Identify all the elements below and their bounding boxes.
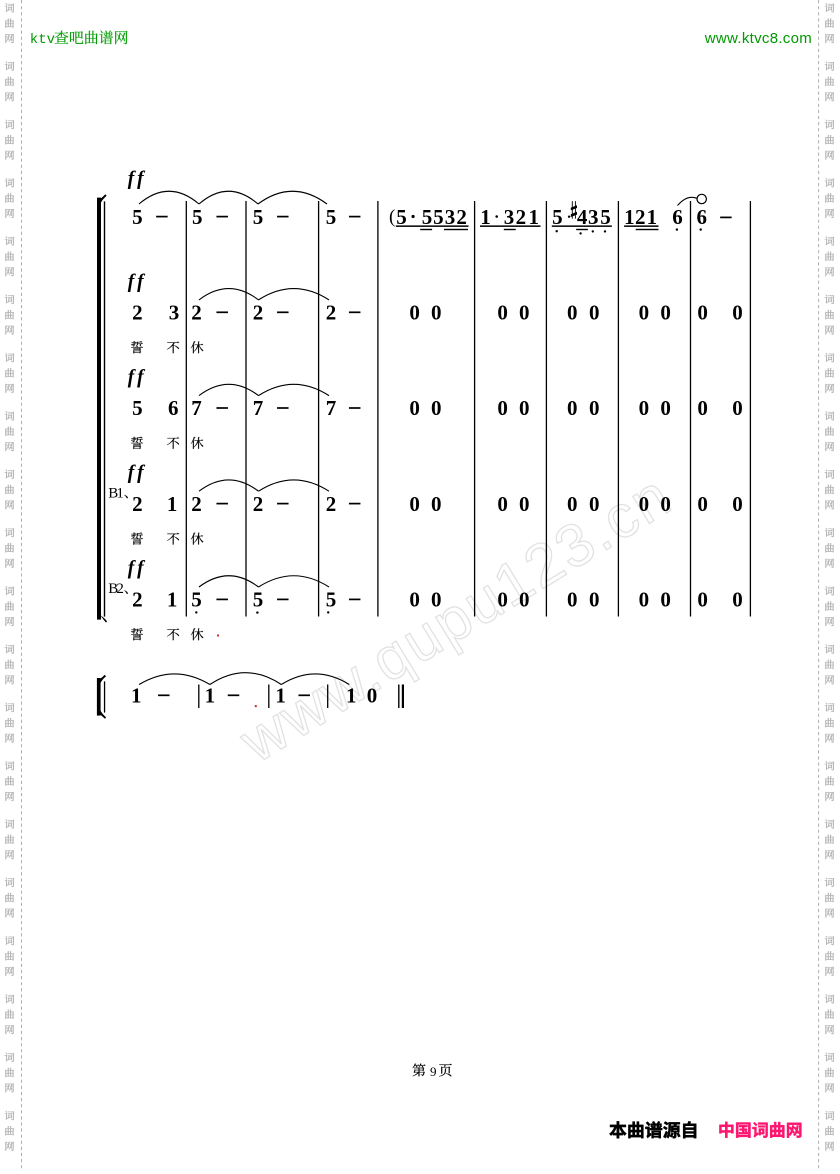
svg-text:7: 7 bbox=[326, 396, 337, 420]
svg-text:6: 6 bbox=[168, 396, 179, 420]
svg-text:ff: ff bbox=[128, 558, 147, 579]
svg-text:0: 0 bbox=[519, 492, 530, 516]
svg-text:1: 1 bbox=[529, 205, 540, 229]
svg-text:0: 0 bbox=[431, 492, 442, 516]
svg-text:5: 5 bbox=[326, 588, 337, 612]
svg-text:0: 0 bbox=[639, 588, 650, 612]
svg-text:0: 0 bbox=[732, 492, 743, 516]
svg-text:5: 5 bbox=[433, 205, 444, 229]
svg-text:5: 5 bbox=[326, 205, 337, 229]
svg-text:0: 0 bbox=[697, 301, 708, 325]
svg-text:3: 3 bbox=[504, 205, 515, 229]
svg-text:0: 0 bbox=[409, 588, 420, 612]
svg-text:0: 0 bbox=[431, 396, 442, 420]
svg-text:5: 5 bbox=[253, 588, 264, 612]
svg-text:1: 1 bbox=[205, 683, 216, 707]
svg-text:5: 5 bbox=[253, 205, 264, 229]
svg-text:0: 0 bbox=[497, 396, 508, 420]
svg-text:0: 0 bbox=[589, 396, 600, 420]
svg-text:2: 2 bbox=[326, 492, 337, 516]
svg-text:2: 2 bbox=[132, 492, 143, 516]
svg-text:0: 0 bbox=[589, 492, 600, 516]
svg-text:1: 1 bbox=[480, 205, 491, 229]
svg-text:5: 5 bbox=[600, 205, 611, 229]
svg-text:(: ( bbox=[389, 206, 395, 227]
svg-text:0: 0 bbox=[497, 588, 508, 612]
svg-text:0: 0 bbox=[431, 588, 442, 612]
svg-text:ff: ff bbox=[128, 168, 147, 189]
svg-text:2: 2 bbox=[253, 492, 264, 516]
svg-text:B2: B2 bbox=[108, 581, 124, 597]
svg-text:0: 0 bbox=[589, 588, 600, 612]
svg-text:0: 0 bbox=[519, 301, 530, 325]
svg-text:0: 0 bbox=[567, 588, 578, 612]
svg-text:www.qupu123.cn: www.qupu123.cn bbox=[228, 461, 683, 776]
svg-text:0: 0 bbox=[639, 301, 650, 325]
svg-text:ff: ff bbox=[128, 271, 147, 292]
svg-text:6: 6 bbox=[672, 205, 683, 229]
svg-text:0: 0 bbox=[697, 492, 708, 516]
svg-text:2: 2 bbox=[191, 301, 202, 325]
svg-text:2: 2 bbox=[456, 205, 467, 229]
svg-text:5: 5 bbox=[192, 205, 203, 229]
svg-text:1: 1 bbox=[275, 683, 286, 707]
svg-text:5: 5 bbox=[132, 396, 143, 420]
svg-text:2: 2 bbox=[326, 301, 337, 325]
svg-text:0: 0 bbox=[567, 301, 578, 325]
svg-text:1: 1 bbox=[131, 683, 142, 707]
svg-text:ktv: ktv bbox=[30, 32, 55, 48]
svg-text:5: 5 bbox=[132, 205, 143, 229]
svg-text:0: 0 bbox=[409, 492, 420, 516]
svg-text:1: 1 bbox=[624, 205, 635, 229]
svg-text:7: 7 bbox=[253, 396, 264, 420]
svg-text:ff: ff bbox=[128, 367, 147, 388]
svg-text:1: 1 bbox=[346, 683, 357, 707]
svg-text:0: 0 bbox=[409, 301, 420, 325]
svg-text:0: 0 bbox=[409, 396, 420, 420]
svg-text:3: 3 bbox=[169, 301, 180, 325]
svg-text:0: 0 bbox=[367, 683, 378, 707]
svg-text:B1: B1 bbox=[108, 486, 124, 502]
svg-text:3: 3 bbox=[445, 205, 456, 229]
svg-text:5: 5 bbox=[396, 205, 407, 229]
svg-text:2: 2 bbox=[132, 301, 143, 325]
svg-text:2: 2 bbox=[253, 301, 264, 325]
svg-text:4: 4 bbox=[577, 205, 588, 229]
svg-text:0: 0 bbox=[431, 301, 442, 325]
svg-text:0: 0 bbox=[732, 396, 743, 420]
svg-text:0: 0 bbox=[697, 588, 708, 612]
svg-text:0: 0 bbox=[660, 396, 671, 420]
svg-text:2: 2 bbox=[132, 588, 143, 612]
svg-text:www.ktvc8.com: www.ktvc8.com bbox=[704, 30, 812, 47]
svg-text:0: 0 bbox=[697, 396, 708, 420]
svg-text:0: 0 bbox=[519, 396, 530, 420]
svg-text:0: 0 bbox=[567, 492, 578, 516]
svg-text:0: 0 bbox=[660, 301, 671, 325]
svg-text:5: 5 bbox=[552, 205, 563, 229]
svg-text:0: 0 bbox=[732, 301, 743, 325]
svg-text:0: 0 bbox=[519, 588, 530, 612]
svg-text:0: 0 bbox=[660, 492, 671, 516]
svg-text:ff: ff bbox=[128, 463, 147, 484]
svg-text:5: 5 bbox=[422, 205, 433, 229]
svg-text:6: 6 bbox=[696, 205, 707, 229]
svg-text:0: 0 bbox=[589, 301, 600, 325]
svg-text:5: 5 bbox=[191, 588, 202, 612]
svg-text:1: 1 bbox=[167, 492, 178, 516]
svg-text:0: 0 bbox=[497, 492, 508, 516]
svg-text:7: 7 bbox=[191, 396, 202, 420]
svg-text:0: 0 bbox=[732, 588, 743, 612]
svg-text:0: 0 bbox=[497, 301, 508, 325]
svg-text:0: 0 bbox=[639, 396, 650, 420]
svg-text:1: 1 bbox=[167, 588, 178, 612]
svg-text:3: 3 bbox=[588, 205, 599, 229]
svg-text:2: 2 bbox=[516, 205, 527, 229]
svg-text:0: 0 bbox=[660, 588, 671, 612]
svg-text:2: 2 bbox=[191, 492, 202, 516]
svg-text:2: 2 bbox=[635, 205, 646, 229]
svg-text:9: 9 bbox=[430, 1064, 437, 1079]
svg-text:1: 1 bbox=[647, 205, 658, 229]
svg-text:0: 0 bbox=[567, 396, 578, 420]
svg-text:0: 0 bbox=[639, 492, 650, 516]
